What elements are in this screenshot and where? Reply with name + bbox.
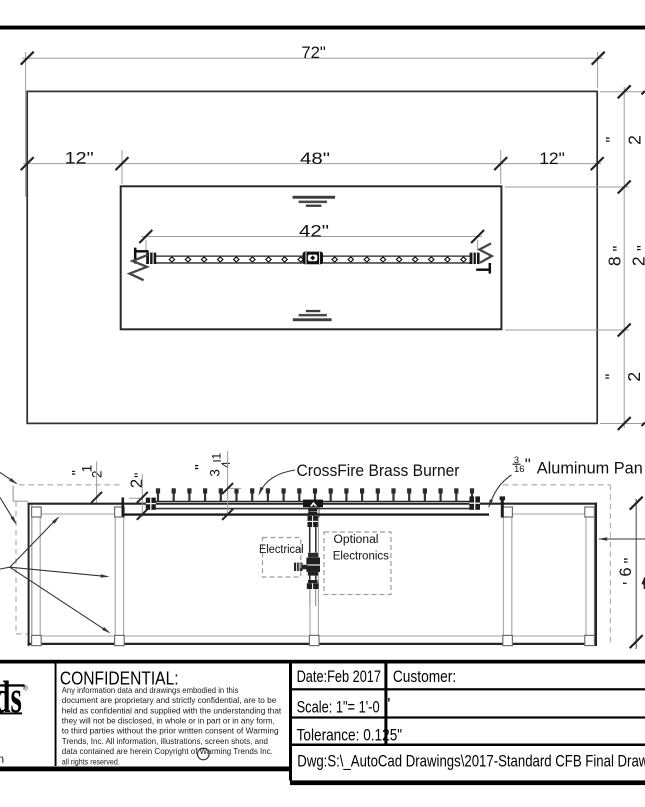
svg-text:72": 72" (301, 43, 326, 62)
svg-text:3: 3 (207, 469, 222, 477)
svg-text:2: 2 (625, 135, 645, 145)
svg-text:Customer:: Customer: (393, 667, 456, 686)
svg-text:12": 12" (65, 148, 94, 167)
svg-text:Electrical: Electrical (259, 544, 304, 556)
svg-text:": " (635, 245, 645, 251)
svg-text:6: 6 (617, 567, 635, 576)
svg-text:Tolerance: 0.125": Tolerance: 0.125" (297, 725, 403, 744)
svg-text:CrossFire Brass Burner: CrossFire Brass Burner (297, 461, 460, 480)
svg-text:Date:Feb 2017: Date:Feb 2017 (297, 667, 381, 686)
svg-text:42": 42" (299, 221, 329, 240)
svg-text:Optional: Optional (334, 534, 379, 546)
svg-text:®: ® (23, 685, 29, 693)
svg-text:": " (603, 373, 621, 379)
svg-text:1: 1 (209, 453, 223, 460)
svg-text:they will not be disclosed, in: they will not be disclosed, in whole or … (62, 716, 275, 726)
svg-text:12": 12" (539, 149, 565, 168)
svg-text:48": 48" (300, 149, 330, 168)
svg-text:": " (622, 557, 640, 563)
svg-text:ds: ds (0, 673, 22, 723)
svg-text:document are proprietary and s: document are proprietary and strictly co… (62, 695, 277, 705)
svg-text:": " (132, 473, 149, 478)
svg-text:16: 16 (514, 464, 525, 475)
svg-text:": " (611, 246, 629, 252)
svg-text:Electronics: Electronics (333, 551, 389, 563)
svg-text:Scale: 1"= 1'-0: Scale: 1"= 1'-0 (297, 697, 380, 716)
svg-text:m: m (0, 754, 4, 766)
svg-text:Trends, Inc. All information,: Trends, Inc. All information, illustrati… (62, 736, 268, 746)
svg-text:4: 4 (219, 461, 233, 468)
svg-text:to third parties without the p: to third parties without the prior writt… (62, 726, 279, 736)
svg-text:Dwg:S:\_AutoCad Drawings\2017-: Dwg:S:\_AutoCad Drawings\2017-Standard C… (297, 753, 645, 771)
svg-text:': ' (387, 695, 390, 714)
svg-text:2: 2 (628, 256, 645, 266)
svg-text:Any information data and drawi: Any information data and drawings embodi… (62, 685, 239, 695)
svg-text:all rights reserved.: all rights reserved. (62, 756, 120, 766)
svg-text:": " (525, 455, 531, 474)
svg-text:": " (603, 137, 621, 143)
svg-text:': ' (620, 582, 638, 585)
svg-text:8: 8 (604, 256, 624, 266)
svg-text:Aluminum Pan: Aluminum Pan (537, 458, 643, 477)
svg-text:held as confidential and suppl: held as confidential and supplied with t… (62, 705, 282, 715)
svg-text:2: 2 (624, 372, 644, 382)
svg-text:2: 2 (127, 479, 146, 488)
svg-text:data contained are herein Copy: data contained are herein Copyright of W… (62, 746, 273, 756)
svg-text:": " (193, 464, 210, 470)
